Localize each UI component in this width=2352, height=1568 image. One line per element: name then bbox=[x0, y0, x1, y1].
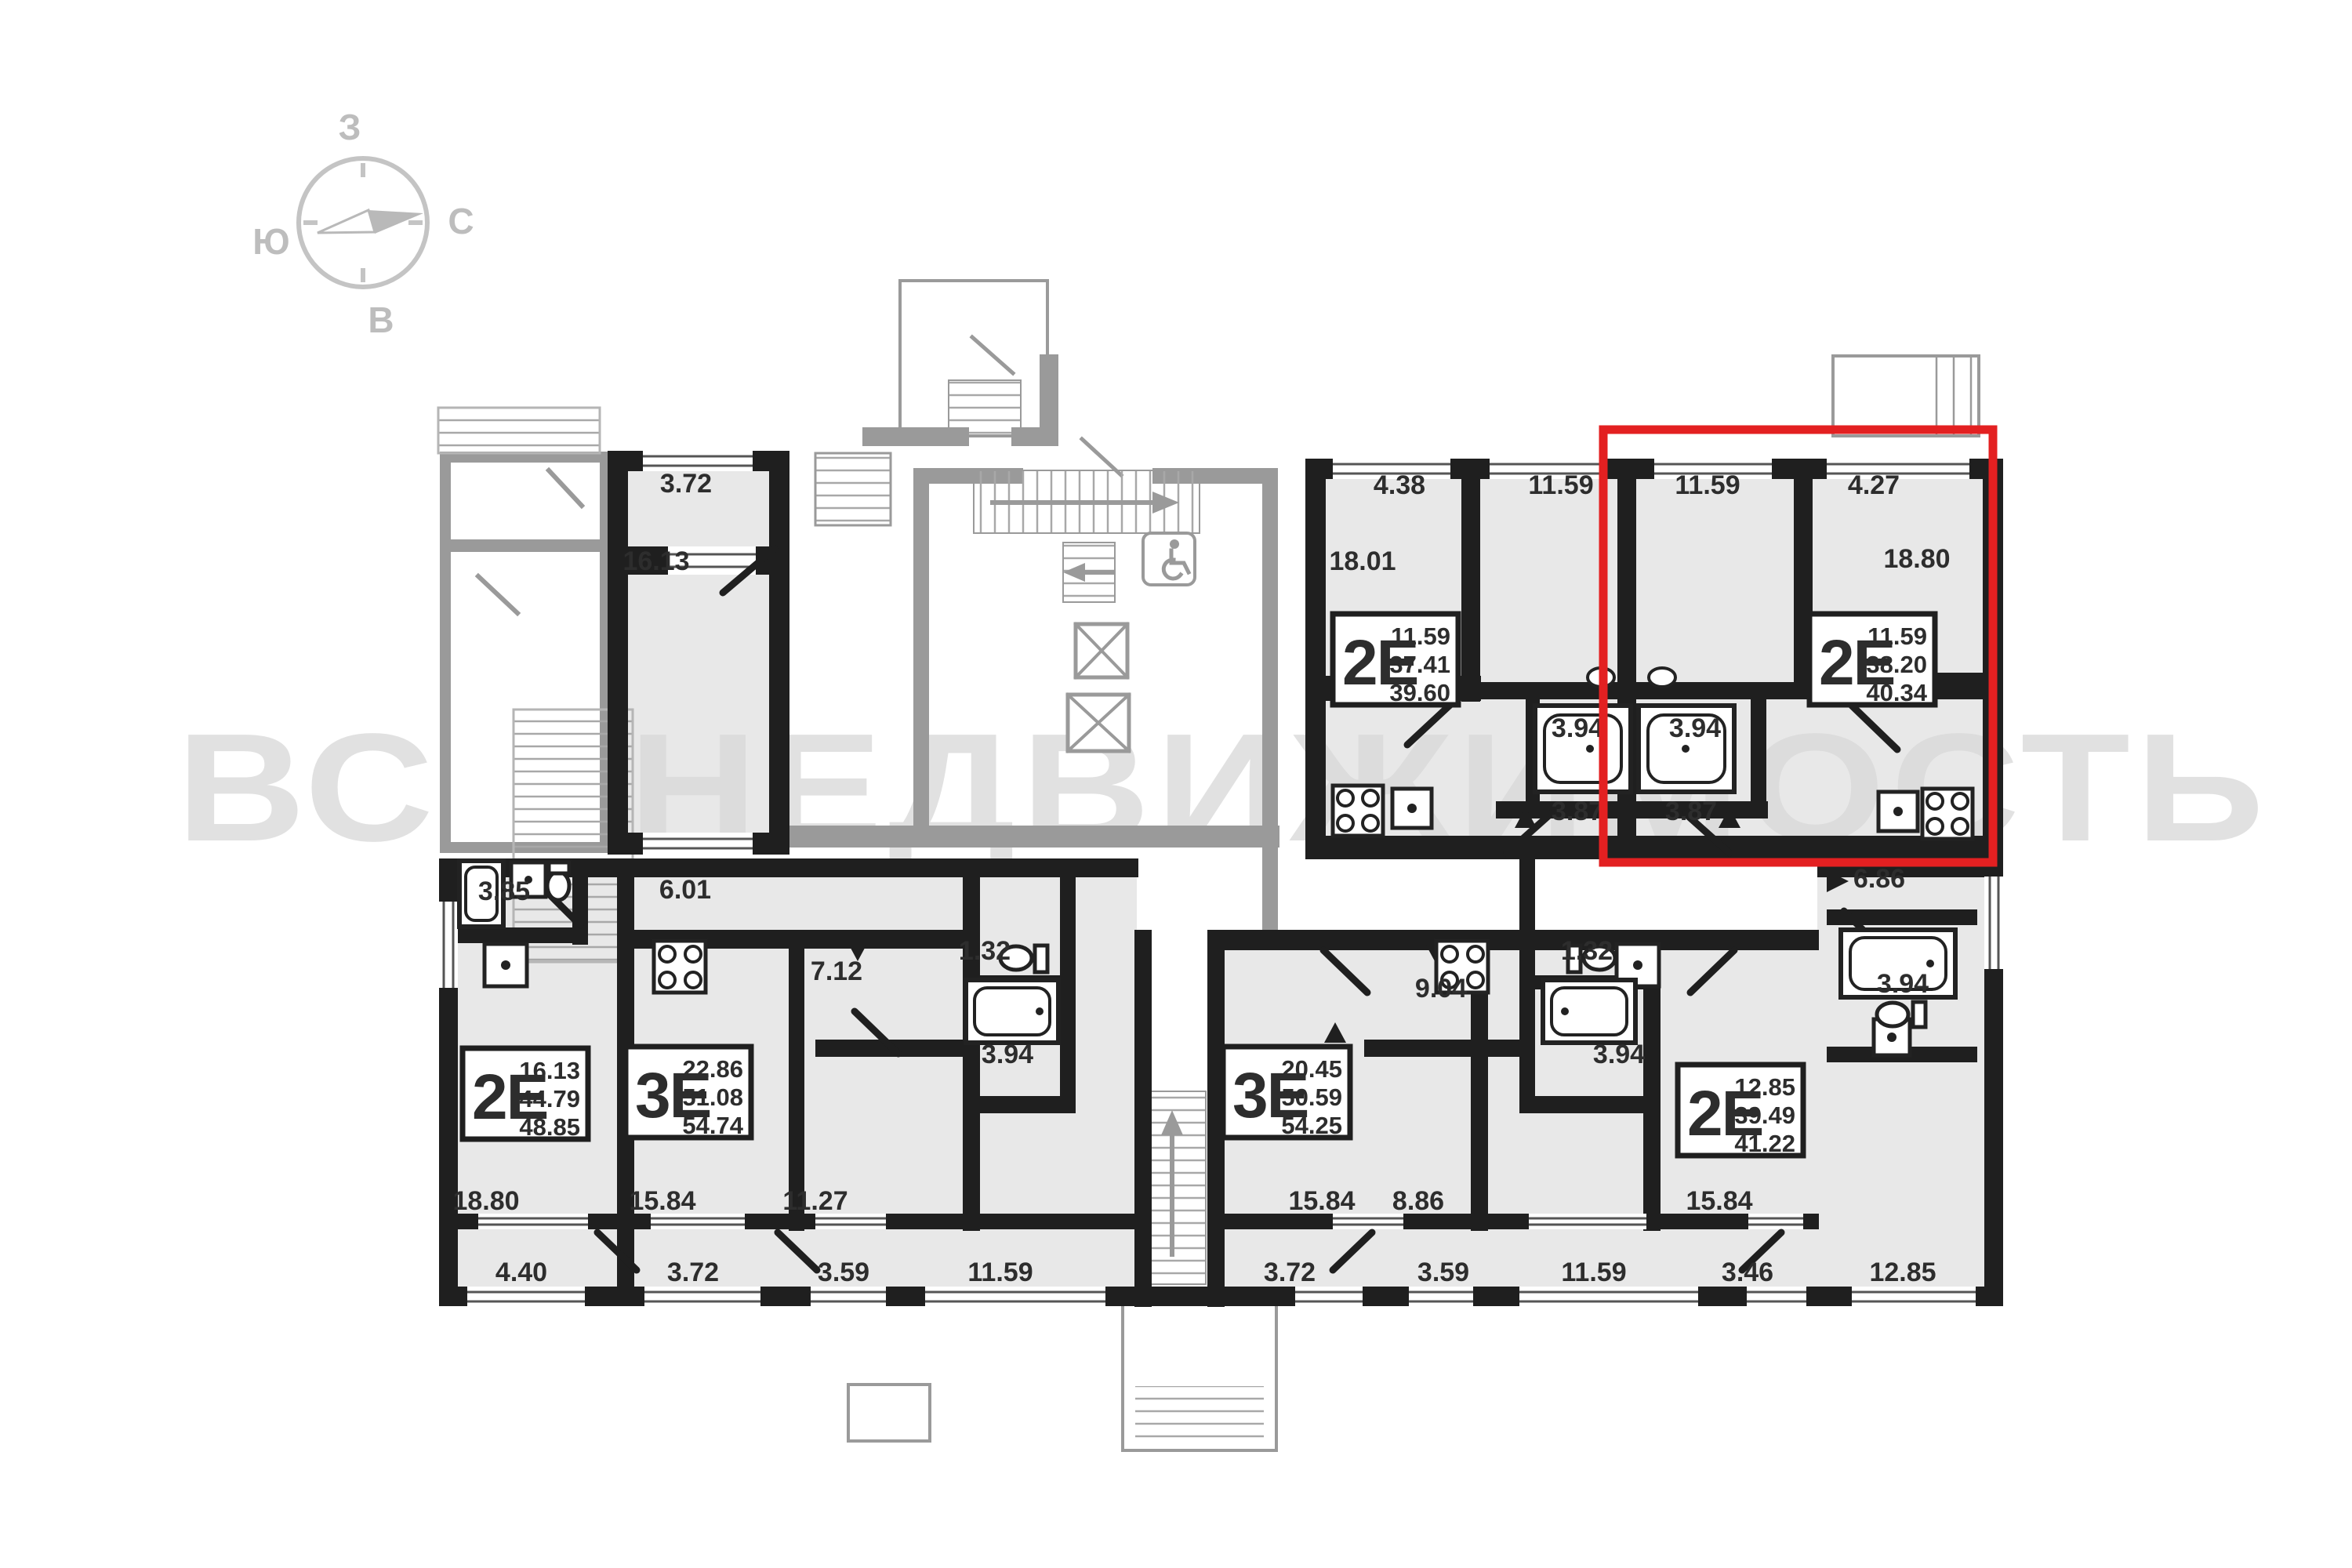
room-area-label: 3.59 bbox=[818, 1258, 869, 1287]
apartment-living-area: 37.41 bbox=[1389, 651, 1450, 678]
room-area-label: 3.94 bbox=[1552, 713, 1603, 743]
room-area-label: 18.01 bbox=[1329, 546, 1396, 576]
room-area-label: 1.32 bbox=[1561, 936, 1613, 966]
room-area-label: 3.94 bbox=[1669, 713, 1721, 743]
room-area-label: 4.40 bbox=[495, 1258, 547, 1287]
room-area-label: 15.84 bbox=[629, 1186, 695, 1216]
room-area-label: 9.04 bbox=[1415, 974, 1467, 1004]
room-area-label: 3.87 bbox=[1665, 797, 1717, 826]
apartment-room-area: 11.59 bbox=[1867, 622, 1927, 650]
room-area-label: 11.27 bbox=[782, 1186, 848, 1216]
shaft-hatch bbox=[815, 453, 891, 525]
room-area-label: 3.94 bbox=[982, 1040, 1033, 1069]
room-area-label: 1.32 bbox=[959, 936, 1011, 966]
floor-plan-page: ВСЯ НЕДВИЖИМОСТЬ bbox=[0, 0, 2352, 1568]
room-area-label: 4.27 bbox=[1848, 470, 1900, 500]
room-area-label: 3.72 bbox=[1264, 1258, 1316, 1287]
compass-rose: З С Ю В bbox=[252, 107, 474, 340]
elevator-shaft bbox=[1076, 624, 1127, 677]
room-area-label: 3.72 bbox=[667, 1258, 719, 1287]
apartment-room-area: 12.85 bbox=[1734, 1073, 1795, 1101]
apartment-room-area: 11.59 bbox=[1391, 622, 1450, 650]
bathtub-icon bbox=[1543, 980, 1635, 1043]
apartment-total-area: 41.22 bbox=[1734, 1130, 1795, 1157]
compass-needle-tail bbox=[318, 210, 375, 233]
compass-west-label: З bbox=[339, 107, 361, 147]
sink-icon bbox=[1878, 792, 1918, 831]
room-area-label: 11.59 bbox=[1675, 470, 1740, 500]
apartment-spec-box: 2Е 11.59 38.20 40.34 bbox=[1809, 614, 1935, 706]
stove-icon bbox=[1333, 786, 1383, 836]
apartment-spec-box: 2Е 16.13 44.79 48.85 bbox=[463, 1048, 588, 1141]
toilet-icon bbox=[547, 862, 569, 900]
room-area-label: 3.72 bbox=[660, 469, 712, 499]
stove-icon bbox=[1922, 789, 1973, 839]
toilet-icon bbox=[1877, 1002, 1926, 1027]
room-area-label: 3.94 bbox=[1877, 969, 1929, 999]
apartment-living-area: 44.79 bbox=[519, 1085, 580, 1112]
room-area-label: 11.59 bbox=[1561, 1258, 1626, 1287]
room-area-label: 4.38 bbox=[1374, 470, 1425, 500]
sink-icon bbox=[485, 944, 527, 986]
apartment-living-area: 38.20 bbox=[1866, 651, 1927, 678]
toilet-icon bbox=[1649, 668, 1675, 687]
room-area-label: 18.80 bbox=[1883, 544, 1950, 574]
elevator-shaft bbox=[1068, 695, 1129, 751]
apartment-spec-box: 2Е 12.85 39.49 41.22 bbox=[1678, 1065, 1803, 1157]
apartment-total-area: 54.74 bbox=[682, 1112, 743, 1139]
apartment-spec-box: 3Е 22.86 51.08 54.74 bbox=[626, 1047, 751, 1139]
room-area-label: 6.86 bbox=[1853, 864, 1905, 894]
apartment-total-area: 48.85 bbox=[519, 1113, 580, 1141]
room-area-label: 11.59 bbox=[967, 1258, 1033, 1287]
apartment-living-area: 39.49 bbox=[1734, 1102, 1795, 1129]
sink-icon bbox=[1392, 789, 1432, 828]
stove-icon bbox=[654, 941, 706, 993]
bathtub-icon bbox=[966, 980, 1058, 1043]
room-area-label: 3.94 bbox=[1593, 1040, 1645, 1069]
floor-plan-svg: ВСЯ НЕДВИЖИМОСТЬ bbox=[0, 0, 2352, 1568]
apartment-room-area: 16.13 bbox=[519, 1057, 580, 1084]
apartment-room-area: 22.86 bbox=[682, 1055, 743, 1083]
compass-north-label: С bbox=[448, 201, 474, 241]
room-area-label: 3.85 bbox=[478, 877, 530, 906]
apartment-spec-box: 2Е 11.59 37.41 39.60 bbox=[1333, 614, 1458, 706]
room-area-label: 7.12 bbox=[811, 956, 862, 986]
wheelchair-icon bbox=[1143, 533, 1195, 585]
room-area-label: 6.01 bbox=[659, 875, 711, 905]
room-area-label: 15.84 bbox=[1288, 1186, 1355, 1216]
room-area-label: 15.84 bbox=[1686, 1186, 1752, 1216]
apartment-total-area: 40.34 bbox=[1866, 679, 1927, 706]
balcony-railing bbox=[1833, 356, 1979, 436]
room-area-label: 18.80 bbox=[452, 1186, 519, 1216]
compass-east-label: В bbox=[368, 299, 394, 340]
room-area-label: 11.59 bbox=[1528, 470, 1593, 500]
apartment-room-area: 20.45 bbox=[1281, 1055, 1342, 1083]
room-area-label: 16.13 bbox=[622, 546, 689, 576]
room-area-label: 8.86 bbox=[1392, 1186, 1444, 1216]
room-area-label: 3.87 bbox=[1552, 797, 1603, 826]
compass-south-label: Ю bbox=[252, 221, 289, 262]
apartment-spec-box: 3Е 20.45 50.59 54.25 bbox=[1223, 1047, 1350, 1139]
room-area-label: 12.85 bbox=[1869, 1258, 1936, 1287]
room-area-label: 3.59 bbox=[1417, 1258, 1469, 1287]
apartment-total-area: 39.60 bbox=[1389, 679, 1450, 706]
apartment-total-area: 54.25 bbox=[1281, 1112, 1342, 1139]
apartment-living-area: 50.59 bbox=[1281, 1083, 1342, 1111]
balcony-hatch bbox=[438, 408, 600, 453]
room-area-label: 3.46 bbox=[1722, 1258, 1773, 1287]
apartment-living-area: 51.08 bbox=[682, 1083, 743, 1111]
